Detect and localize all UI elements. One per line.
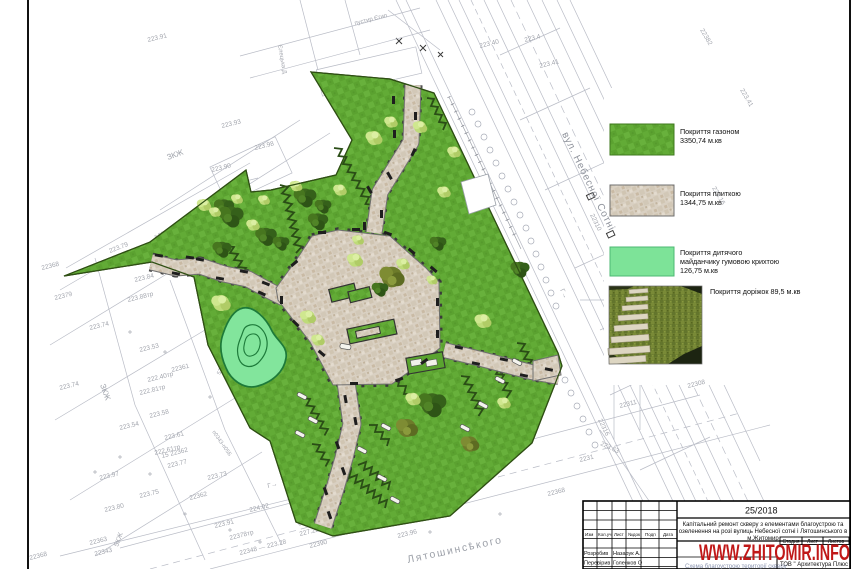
- svg-text:Покриття дитячого: Покриття дитячого: [680, 248, 742, 257]
- svg-text:озеленення на розі вулиць Небе: озеленення на розі вулиць Небесної сотні…: [679, 529, 848, 535]
- svg-text:Кол.уч: Кол.уч: [598, 532, 612, 537]
- svg-text:Изм: Изм: [585, 532, 593, 537]
- svg-text:Лист: Лист: [614, 532, 624, 537]
- svg-text:3350,74 м.кв: 3350,74 м.кв: [680, 136, 722, 145]
- svg-text:Покриття доріжок 89,5 м.кв: Покриття доріжок 89,5 м.кв: [710, 287, 801, 296]
- svg-text:Назарук А.: Назарук А.: [613, 551, 641, 557]
- svg-text:Покриття газоном: Покриття газоном: [680, 127, 739, 136]
- svg-text:Голенков О: Голенков О: [613, 561, 643, 567]
- svg-text:1344,75 м.кв: 1344,75 м.кв: [680, 198, 722, 207]
- svg-text:Перевірив: Перевірив: [584, 561, 610, 567]
- svg-text:Подп: Подп: [645, 532, 656, 537]
- svg-text:№док: №док: [628, 532, 640, 537]
- svg-text:126,75 м.кв: 126,75 м.кв: [680, 266, 718, 275]
- svg-text:Покриття плиткою: Покриття плиткою: [680, 189, 741, 198]
- svg-text:Розробив: Розробив: [584, 551, 608, 557]
- svg-text:Дата: Дата: [663, 532, 673, 537]
- svg-text:WWW.ZHITOMIR.INFO: WWW.ZHITOMIR.INFO: [699, 540, 850, 565]
- svg-text:майданчику гумовою крихтою: майданчику гумовою крихтою: [680, 257, 780, 266]
- svg-text:Капітальний ремонт скверу з ел: Капітальний ремонт скверу з елементами б…: [683, 521, 844, 528]
- svg-text:25/2018: 25/2018: [745, 506, 778, 516]
